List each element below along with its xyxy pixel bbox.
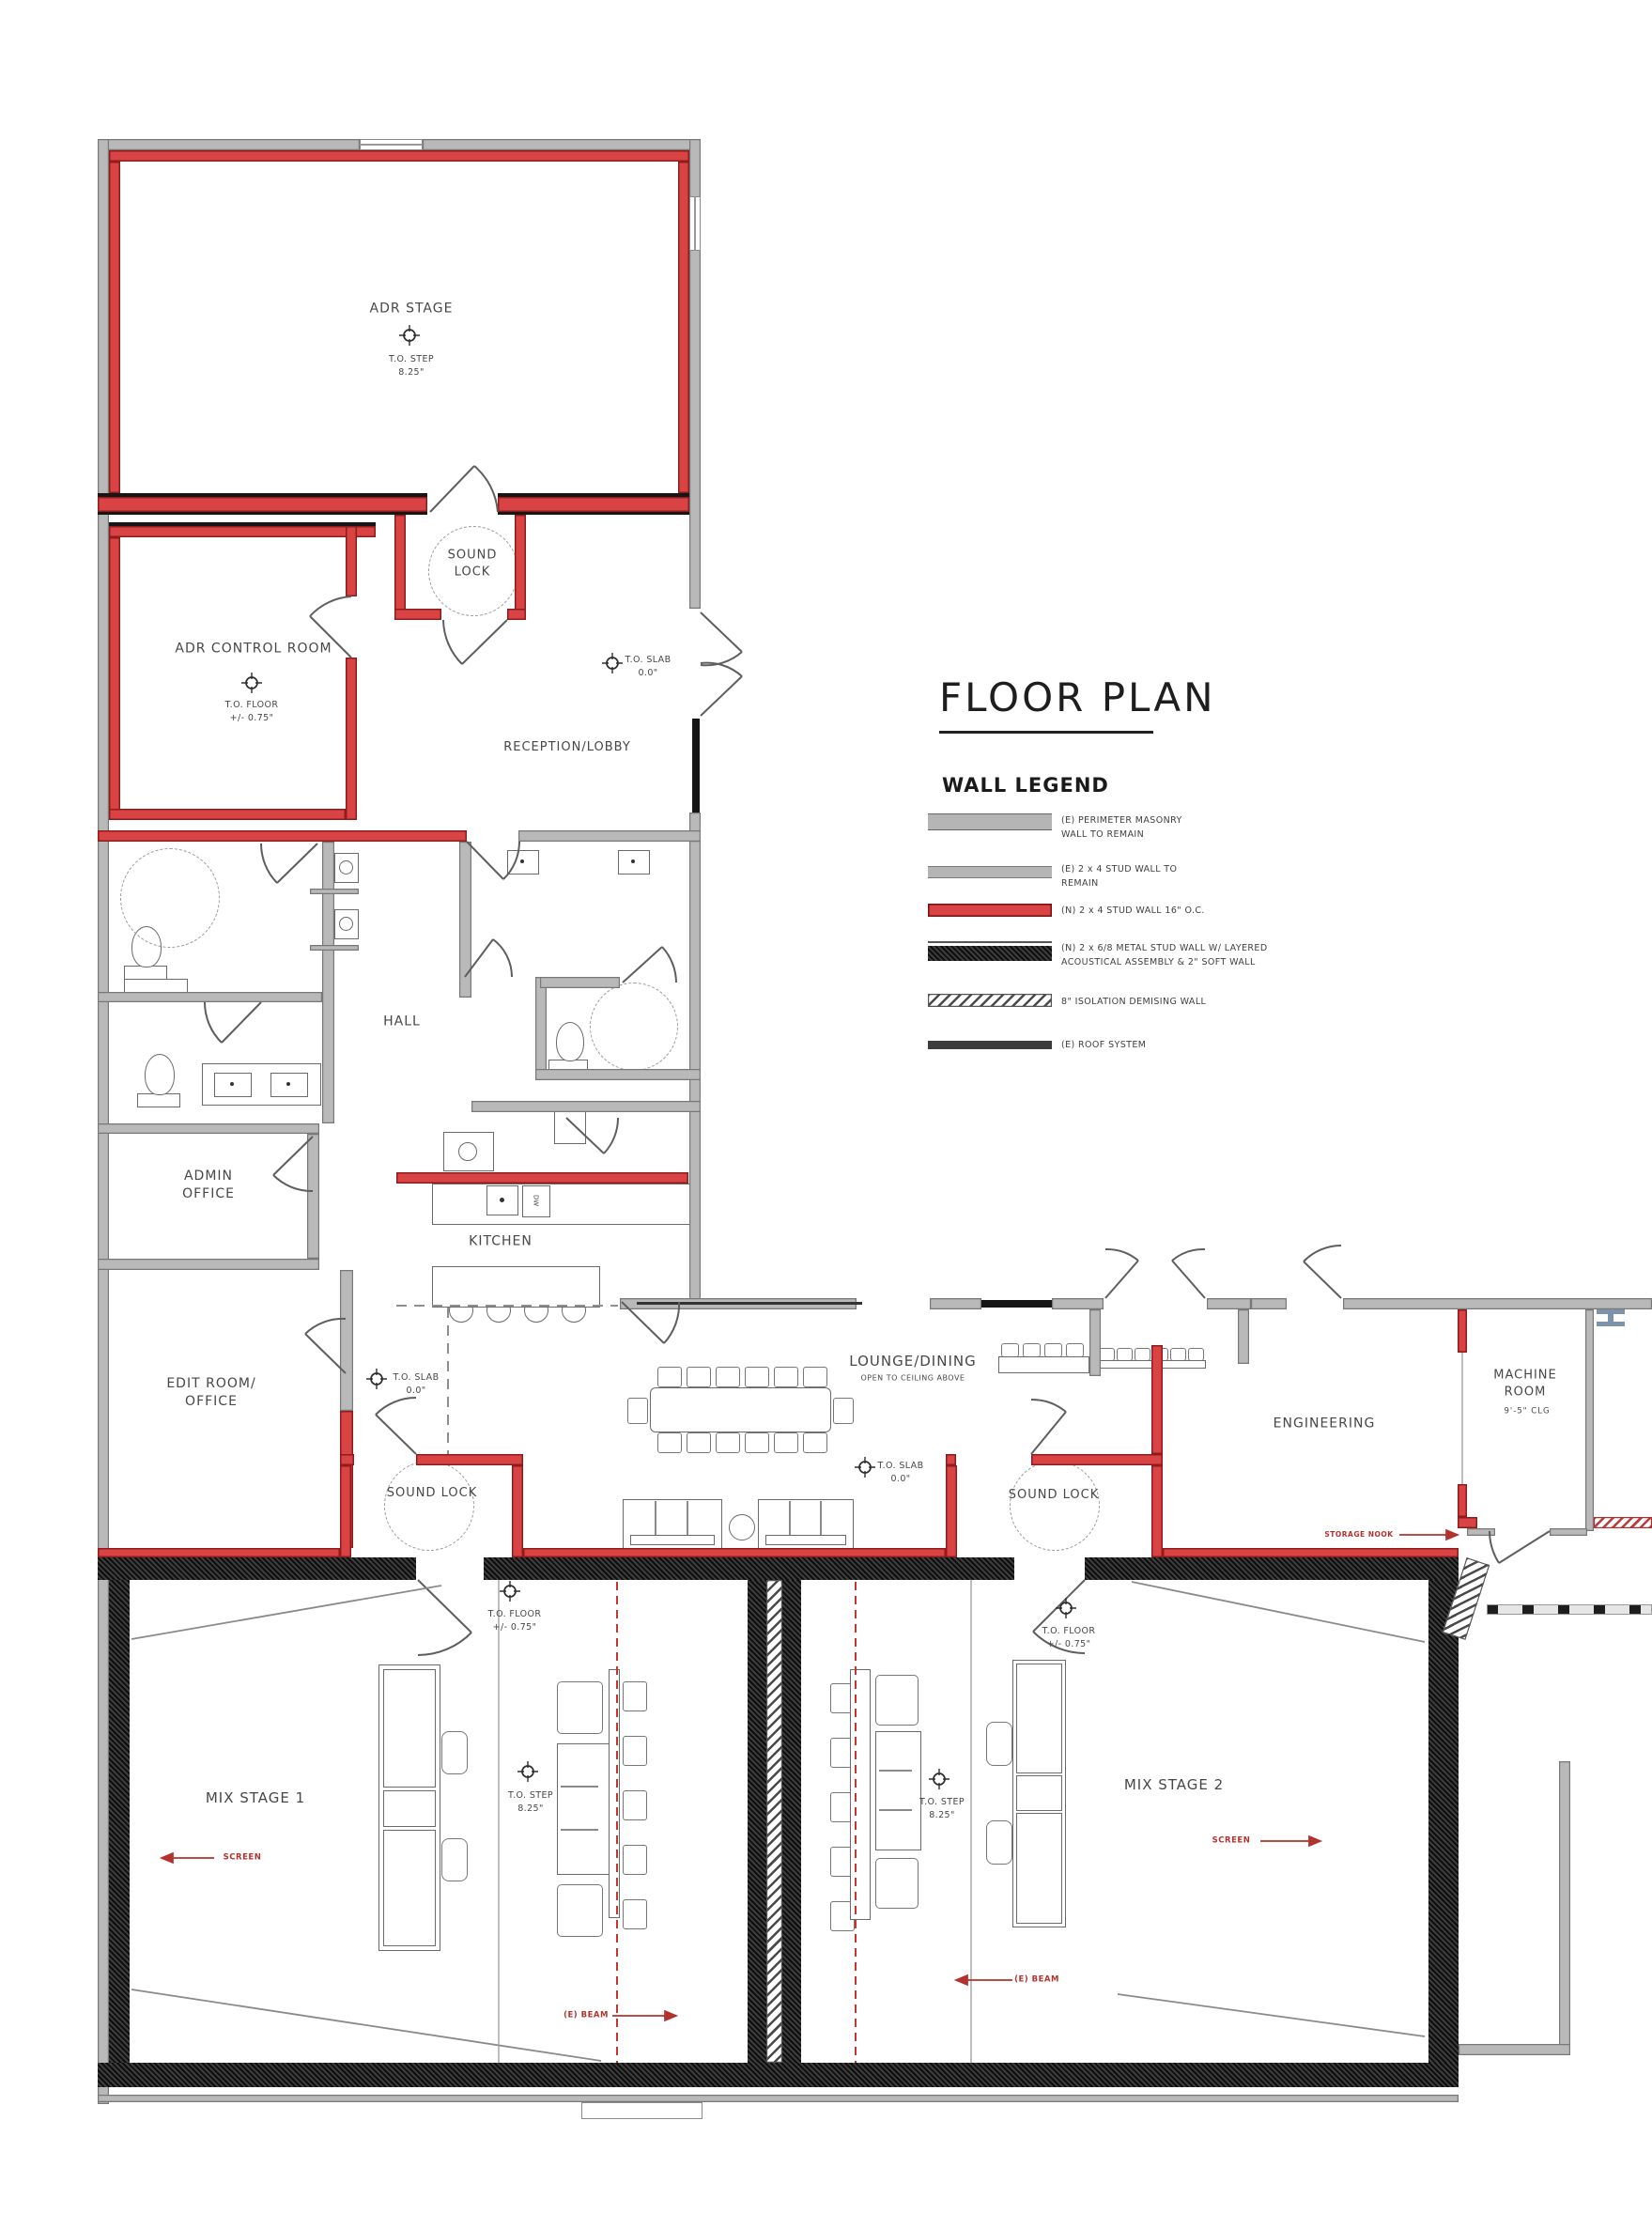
- wall-southwing-top-6: [1343, 1298, 1652, 1309]
- title-underline: [939, 731, 1153, 734]
- seat: [623, 1681, 647, 1711]
- label-beam-mix2: (E) BEAM: [1014, 1974, 1059, 1985]
- wall-new-mix-top-2: [523, 1548, 946, 1557]
- wall-new-vestibule-south-2: [507, 609, 526, 620]
- wall-ada-north: [540, 977, 620, 988]
- room-label-mix1: MIX STAGE 1: [206, 1788, 305, 1807]
- toilet-tank: [137, 1093, 180, 1107]
- label-machine-clg: 9'-5" CLG: [1504, 1406, 1550, 1416]
- dining-chair: [833, 1398, 854, 1424]
- existing-beam-dashed: [617, 1582, 856, 2063]
- wall-acoustic-mix-left: [109, 1580, 130, 2063]
- legend-swatch-new-stud: [928, 904, 1052, 917]
- dining-chair: [716, 1367, 740, 1387]
- sink-drain: [631, 859, 635, 863]
- wall-new-machine-corner: [1458, 1517, 1477, 1528]
- marker-slab-reception: T.O. SLAB 0.0": [625, 654, 672, 681]
- task-chair: [441, 1838, 468, 1881]
- wall-new-stage-left: [109, 162, 120, 493]
- wall-stub-entry: [1238, 1309, 1249, 1364]
- mix2-riser-rail: [850, 1669, 871, 1920]
- dining-chair: [657, 1432, 682, 1453]
- wall-stage-top-left: [98, 139, 360, 150]
- legend-swatch-stud: [928, 866, 1052, 878]
- wall-hall-south: [98, 1123, 319, 1134]
- wall-new-machine-w-top: [1458, 1309, 1467, 1353]
- wall-soundlock-right-e: [1151, 1465, 1163, 1557]
- wall-acoustic-mix-top-3: [1085, 1557, 1459, 1580]
- kitchen-dishwasher-label: DW: [531, 1195, 539, 1206]
- steel-beam-icon: [1608, 1312, 1613, 1323]
- legend-swatch-acoustic-line: [928, 941, 1052, 943]
- wall-new-control-east-upper: [346, 526, 357, 596]
- wall-southwing-top-5: [1251, 1298, 1287, 1309]
- wall-west-perimeter: [98, 139, 109, 2104]
- lounge-bench-counter: [998, 1356, 1089, 1373]
- task-chair: [986, 1820, 1012, 1865]
- dining-chair: [687, 1367, 711, 1387]
- wall-corridor-east: [1559, 1761, 1570, 2055]
- room-label-kitchen: KITCHEN: [469, 1233, 533, 1251]
- legend-swatch-masonry: [928, 813, 1052, 830]
- bench-stool: [1066, 1343, 1084, 1357]
- wall-new-control-left: [109, 537, 120, 820]
- sofa-cushion-line: [561, 1786, 598, 1788]
- dining-chair: [657, 1367, 682, 1387]
- wall-ada-south: [535, 1069, 701, 1080]
- wall-stub-lounge-eng: [1089, 1309, 1101, 1376]
- armchair: [875, 1675, 919, 1726]
- wall-southwing-top-3: [1052, 1298, 1104, 1309]
- room-label-adr-control: ADR CONTROL ROOM: [175, 641, 332, 658]
- armchair: [557, 1884, 603, 1937]
- mix1-console-section: [383, 1830, 436, 1946]
- legend-item-label: (E) ROOF SYSTEM: [1061, 1038, 1381, 1052]
- room-label-hall: HALL: [383, 1014, 421, 1031]
- kitchen-fridge: [554, 1110, 586, 1144]
- dining-chair: [803, 1432, 827, 1453]
- seat: [623, 1899, 647, 1929]
- label-screen-mix1: SCREEN: [224, 1852, 262, 1863]
- wall-admin-edit-divider: [98, 1259, 319, 1270]
- wall-restroom-partition: [98, 992, 322, 1002]
- mix2-console-section: [1016, 1813, 1062, 1924]
- sink-drain: [230, 1082, 234, 1086]
- bench-stool: [1023, 1343, 1041, 1357]
- mix1-console-section: [383, 1790, 436, 1827]
- sofa-cushion-line: [561, 1829, 598, 1831]
- wall-new-stage-top: [109, 150, 689, 162]
- window-stage-east-mullion: [694, 196, 696, 251]
- wall-southwing-top-2: [930, 1298, 981, 1309]
- legend-heading: WALL LEGEND: [942, 774, 1109, 797]
- wall-soundlock-right-spur: [1151, 1345, 1163, 1454]
- toilet-bowl: [556, 1022, 584, 1061]
- wall-new-control-bottom: [109, 809, 346, 820]
- armchair: [557, 1681, 603, 1734]
- annotation-arrows: [162, 1530, 1458, 2020]
- wall-corridor-south: [1459, 2044, 1570, 2055]
- seat: [623, 1790, 647, 1820]
- legend-item-label: (N) 2 x 4 STUD WALL 16" O.C.: [1061, 904, 1381, 918]
- dining-chair: [745, 1367, 769, 1387]
- wall-new-control-east-lower: [346, 658, 357, 820]
- armchair: [875, 1858, 919, 1909]
- wall-new-mix-top-1: [98, 1548, 340, 1557]
- wall-isolation-mix-middle: [766, 1580, 782, 2063]
- wall-exterior-bottom: [98, 2095, 1459, 2102]
- turning-circle: [590, 983, 678, 1071]
- wall-new-mix-top-3: [1163, 1548, 1459, 1557]
- legend-swatch-roof: [928, 1041, 1052, 1049]
- wall-soundlock-left-n2: [416, 1454, 523, 1465]
- roof-line-stage-bottom2: [98, 512, 427, 515]
- mix2-console-section: [1016, 1664, 1062, 1773]
- wall-new-kitchen: [396, 1172, 688, 1184]
- storefront-lounge-line: [637, 1302, 862, 1305]
- dining-table: [650, 1387, 831, 1432]
- legend-item-label: (E) PERIMETER MASONRY WALL TO REMAIN: [1061, 813, 1381, 842]
- urinal-screen-2: [310, 945, 359, 951]
- room-label-machine: MACHINE ROOM: [1493, 1367, 1557, 1400]
- wall-ada-west: [535, 977, 547, 1080]
- sofa-cushion-line: [789, 1501, 791, 1535]
- marker-slab-lounge-west: T.O. SLAB 0.0": [394, 1371, 440, 1399]
- wall-machine-south-2: [1550, 1528, 1587, 1536]
- mix1-sofa: [557, 1743, 610, 1875]
- seat: [623, 1736, 647, 1766]
- mix2-sofa: [875, 1731, 921, 1850]
- wall-restroom-a-east: [322, 842, 334, 1123]
- room-label-lounge: LOUNGE/DINING: [849, 1352, 976, 1370]
- kitchen-island: [432, 1266, 600, 1308]
- mix2-console-section: [1016, 1775, 1062, 1811]
- turning-circle: [1010, 1461, 1100, 1551]
- page-title: FLOOR PLAN: [939, 674, 1216, 720]
- sofa-cushion-line: [879, 1809, 912, 1811]
- room-label-adr-stage: ADR STAGE: [370, 301, 454, 318]
- wall-kitchen-north: [471, 1101, 701, 1112]
- roof-line-stage-bottom4: [498, 512, 689, 515]
- room-label-admin: ADMIN OFFICE: [182, 1168, 235, 1203]
- bench-stool: [1001, 1343, 1019, 1357]
- seat: [623, 1845, 647, 1875]
- sink-drain: [286, 1082, 290, 1086]
- wall-machine-south-1: [1467, 1528, 1495, 1536]
- storefront-lounge-top: [981, 1300, 1052, 1308]
- dining-chair: [687, 1432, 711, 1453]
- wall-acoustic-mix-bottom: [98, 2063, 1459, 2087]
- wall-new-stage-bottom-left: [98, 497, 427, 512]
- task-chair: [441, 1731, 468, 1774]
- mix1-console-section: [383, 1669, 436, 1788]
- round-side-table: [729, 1514, 755, 1540]
- legend-swatch-acoustic: [928, 946, 1052, 961]
- label-screen-mix2: SCREEN: [1212, 1835, 1251, 1846]
- sofa-base: [630, 1535, 715, 1545]
- dining-chair: [627, 1398, 648, 1424]
- wall-edit-east-upper: [340, 1270, 353, 1411]
- wall-new-vestibule-west: [394, 515, 406, 620]
- room-label-edit: EDIT ROOM/ OFFICE: [166, 1375, 255, 1411]
- marker-step-stage: T.O. STEP 8.25": [389, 353, 434, 380]
- wall-restroom-b-east: [459, 842, 471, 998]
- floor-plan-sheet: DW: [0, 0, 1652, 2229]
- marker-step-mix1: T.O. STEP 8.25": [508, 1789, 553, 1817]
- room-label-reception: RECEPTION/LOBBY: [503, 739, 631, 756]
- wall-new-stage-right: [678, 162, 689, 493]
- entry-stool: [1135, 1348, 1150, 1361]
- entry-stool: [1099, 1348, 1115, 1361]
- label-storage-nook: STORAGE NOOK: [1324, 1530, 1393, 1540]
- exterior-stoop: [581, 2102, 702, 2119]
- wall-new-hall-top: [98, 830, 467, 842]
- dining-chair: [774, 1432, 798, 1453]
- sofa-cushion-line: [687, 1501, 688, 1535]
- plan-linework-overlay: [0, 0, 1652, 2229]
- bench-stool: [1044, 1343, 1062, 1357]
- marker-floor-mix1: T.O. FLOOR +/- 0.75": [488, 1608, 542, 1635]
- label-beam-mix1: (E) BEAM: [564, 2010, 609, 2020]
- wall-admin-east: [307, 1134, 319, 1259]
- room-label-mix2: MIX STAGE 2: [1124, 1775, 1224, 1794]
- room-label-sound-lock-left: SOUND LOCK: [387, 1485, 477, 1502]
- legend-item-label: 8" ISOLATION DEMISING WALL: [1061, 995, 1381, 1009]
- wall-soundlock-left-e: [512, 1465, 523, 1557]
- sofa-cushion-line: [820, 1501, 822, 1535]
- wall-soundlock-left-n1: [340, 1454, 354, 1465]
- wall-isolation-red-hatch: [1594, 1517, 1652, 1528]
- marker-floor-mix2: T.O. FLOOR +/- 0.75": [1042, 1625, 1096, 1652]
- urinal-bowl: [339, 917, 353, 931]
- dining-chair: [803, 1367, 827, 1387]
- wall-soundlock-right-n2: [1031, 1454, 1163, 1465]
- wall-new-machine-w-bot: [1458, 1484, 1467, 1517]
- room-label-engineering: ENGINEERING: [1274, 1416, 1376, 1433]
- toilet-bowl: [145, 1054, 175, 1095]
- marker-floor-control: T.O. FLOOR +/- 0.75": [225, 699, 279, 726]
- entry-stool: [1170, 1348, 1186, 1361]
- turning-circle: [384, 1461, 474, 1551]
- wall-acoustic-mix-top-1: [98, 1557, 416, 1580]
- wall-acoustic-mix-top-2: [484, 1557, 1014, 1580]
- task-chair: [986, 1722, 1012, 1766]
- mix1-riser-rail: [609, 1669, 620, 1918]
- wall-soundlock-right-n1: [946, 1454, 956, 1465]
- window-stage-top-mullion: [360, 144, 423, 146]
- entry-stool: [1188, 1348, 1204, 1361]
- toilet-tank: [124, 966, 167, 980]
- wall-soundlock-left-w: [340, 1465, 351, 1557]
- wall-stage-top-right: [423, 139, 701, 150]
- sofa-base: [765, 1535, 846, 1545]
- turning-circle: [120, 848, 220, 948]
- room-label-lounge-sub: OPEN TO CEILING ABOVE: [861, 1374, 965, 1385]
- marker-slab-lounge: T.O. SLAB 0.0": [878, 1460, 924, 1487]
- room-label-sound-lock-right: SOUND LOCK: [1009, 1487, 1099, 1504]
- urinal-bowl: [339, 860, 353, 875]
- wall-new-stage-bottom-right: [498, 497, 689, 512]
- wall-new-control-top: [109, 526, 376, 537]
- wall-new-vestibule-east: [515, 515, 526, 620]
- legend-swatch-isolation: [928, 994, 1052, 1007]
- room-label-sound-lock-top: SOUND LOCK: [448, 547, 498, 580]
- marker-step-mix2: T.O. STEP 8.25": [919, 1796, 965, 1823]
- legend-item-label: (N) 2 x 6/8 METAL STUD WALL W/ LAYERED A…: [1061, 941, 1399, 969]
- dining-chair: [745, 1432, 769, 1453]
- kitchen-stove-knob: [500, 1198, 504, 1202]
- urinal-screen-1: [310, 889, 359, 894]
- wall-hall-top-gray: [518, 830, 701, 842]
- wall-southwing-top-4: [1207, 1298, 1251, 1309]
- wall-louver-ticks: [1487, 1604, 1652, 1615]
- kitchen-counter: [432, 1184, 690, 1225]
- legend-item-label: (E) 2 x 4 STUD WALL TO REMAIN: [1061, 862, 1381, 890]
- dining-chair: [716, 1432, 740, 1453]
- sink-drain: [520, 859, 524, 863]
- storefront-reception: [692, 719, 700, 813]
- wall-new-vestibule-south-1: [394, 609, 441, 620]
- wall-soundlock-right-w: [946, 1465, 957, 1557]
- entry-stool: [1117, 1348, 1133, 1361]
- sofa-cushion-line: [879, 1770, 912, 1772]
- sofa-cushion-line: [655, 1501, 656, 1535]
- dining-chair: [774, 1367, 798, 1387]
- wall-machine-east: [1585, 1309, 1594, 1531]
- wall-acoustic-mix-right: [1428, 1580, 1459, 2063]
- kitchen-coffee-sink: [458, 1142, 477, 1161]
